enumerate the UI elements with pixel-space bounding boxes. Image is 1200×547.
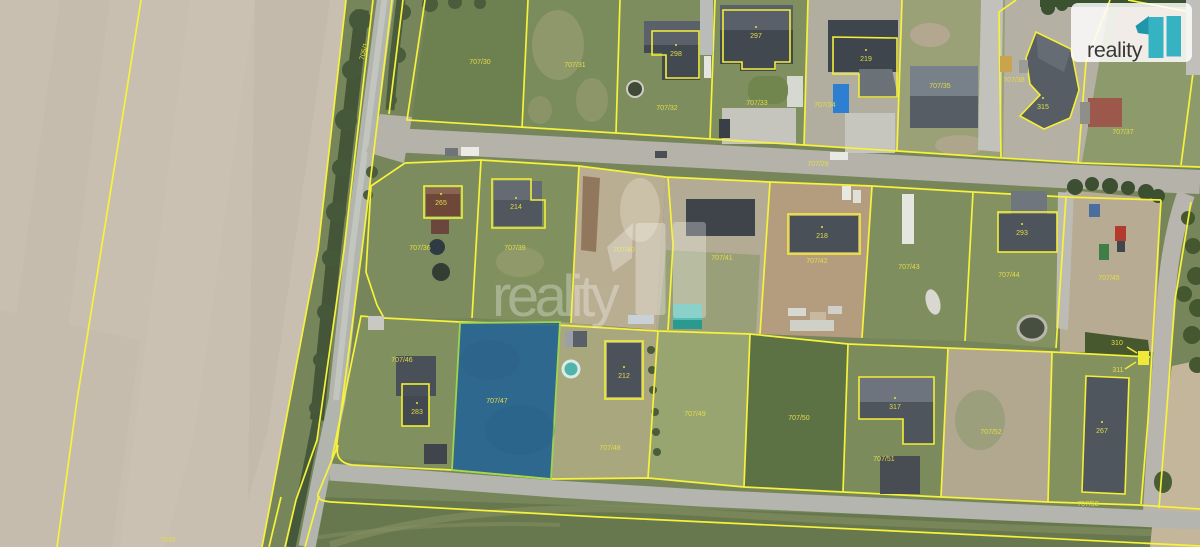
svg-text:707/42: 707/42 bbox=[806, 258, 828, 265]
svg-text:reality: reality bbox=[492, 264, 620, 329]
svg-text:214: 214 bbox=[510, 204, 522, 211]
svg-text:310: 310 bbox=[1111, 340, 1123, 347]
svg-text:707/35: 707/35 bbox=[929, 83, 951, 90]
svg-text:707/34: 707/34 bbox=[814, 102, 836, 109]
svg-text:707/48: 707/48 bbox=[599, 445, 621, 452]
svg-text:317: 317 bbox=[889, 404, 901, 411]
svg-text:297: 297 bbox=[750, 33, 762, 40]
svg-text:reality: reality bbox=[1087, 38, 1143, 62]
svg-text:707/37: 707/37 bbox=[1112, 129, 1134, 136]
svg-text:707/52: 707/52 bbox=[980, 429, 1002, 436]
svg-text:298: 298 bbox=[670, 51, 682, 58]
svg-text:707/38: 707/38 bbox=[1003, 77, 1025, 84]
svg-text:707/51: 707/51 bbox=[873, 456, 895, 463]
svg-text:707/46: 707/46 bbox=[391, 357, 413, 364]
svg-text:707/45: 707/45 bbox=[1098, 275, 1120, 282]
svg-text:283: 283 bbox=[411, 409, 423, 416]
svg-text:707/49: 707/49 bbox=[684, 411, 706, 418]
svg-text:707/31: 707/31 bbox=[564, 62, 586, 69]
svg-text:7531: 7531 bbox=[160, 537, 176, 544]
svg-text:707/43: 707/43 bbox=[898, 264, 920, 271]
svg-text:707/53: 707/53 bbox=[1077, 501, 1099, 508]
svg-text:293: 293 bbox=[1016, 230, 1028, 237]
svg-text:315: 315 bbox=[1037, 104, 1049, 111]
svg-text:707/32: 707/32 bbox=[656, 105, 678, 112]
svg-text:707/30: 707/30 bbox=[469, 59, 491, 66]
svg-text:707/41: 707/41 bbox=[711, 255, 733, 262]
svg-text:707/33: 707/33 bbox=[746, 100, 768, 107]
svg-text:219: 219 bbox=[860, 56, 872, 63]
svg-text:218: 218 bbox=[816, 233, 828, 240]
svg-text:311: 311 bbox=[1112, 367, 1123, 374]
svg-text:267: 267 bbox=[1096, 428, 1108, 435]
svg-text:707/39: 707/39 bbox=[504, 245, 526, 252]
svg-text:707/50: 707/50 bbox=[788, 415, 810, 422]
svg-text:707/47: 707/47 bbox=[486, 398, 508, 405]
svg-text:212: 212 bbox=[618, 373, 630, 380]
svg-text:707/44: 707/44 bbox=[998, 272, 1020, 279]
svg-text:265: 265 bbox=[435, 200, 447, 207]
svg-text:707/36: 707/36 bbox=[409, 245, 431, 252]
svg-text:707/29: 707/29 bbox=[807, 161, 829, 168]
